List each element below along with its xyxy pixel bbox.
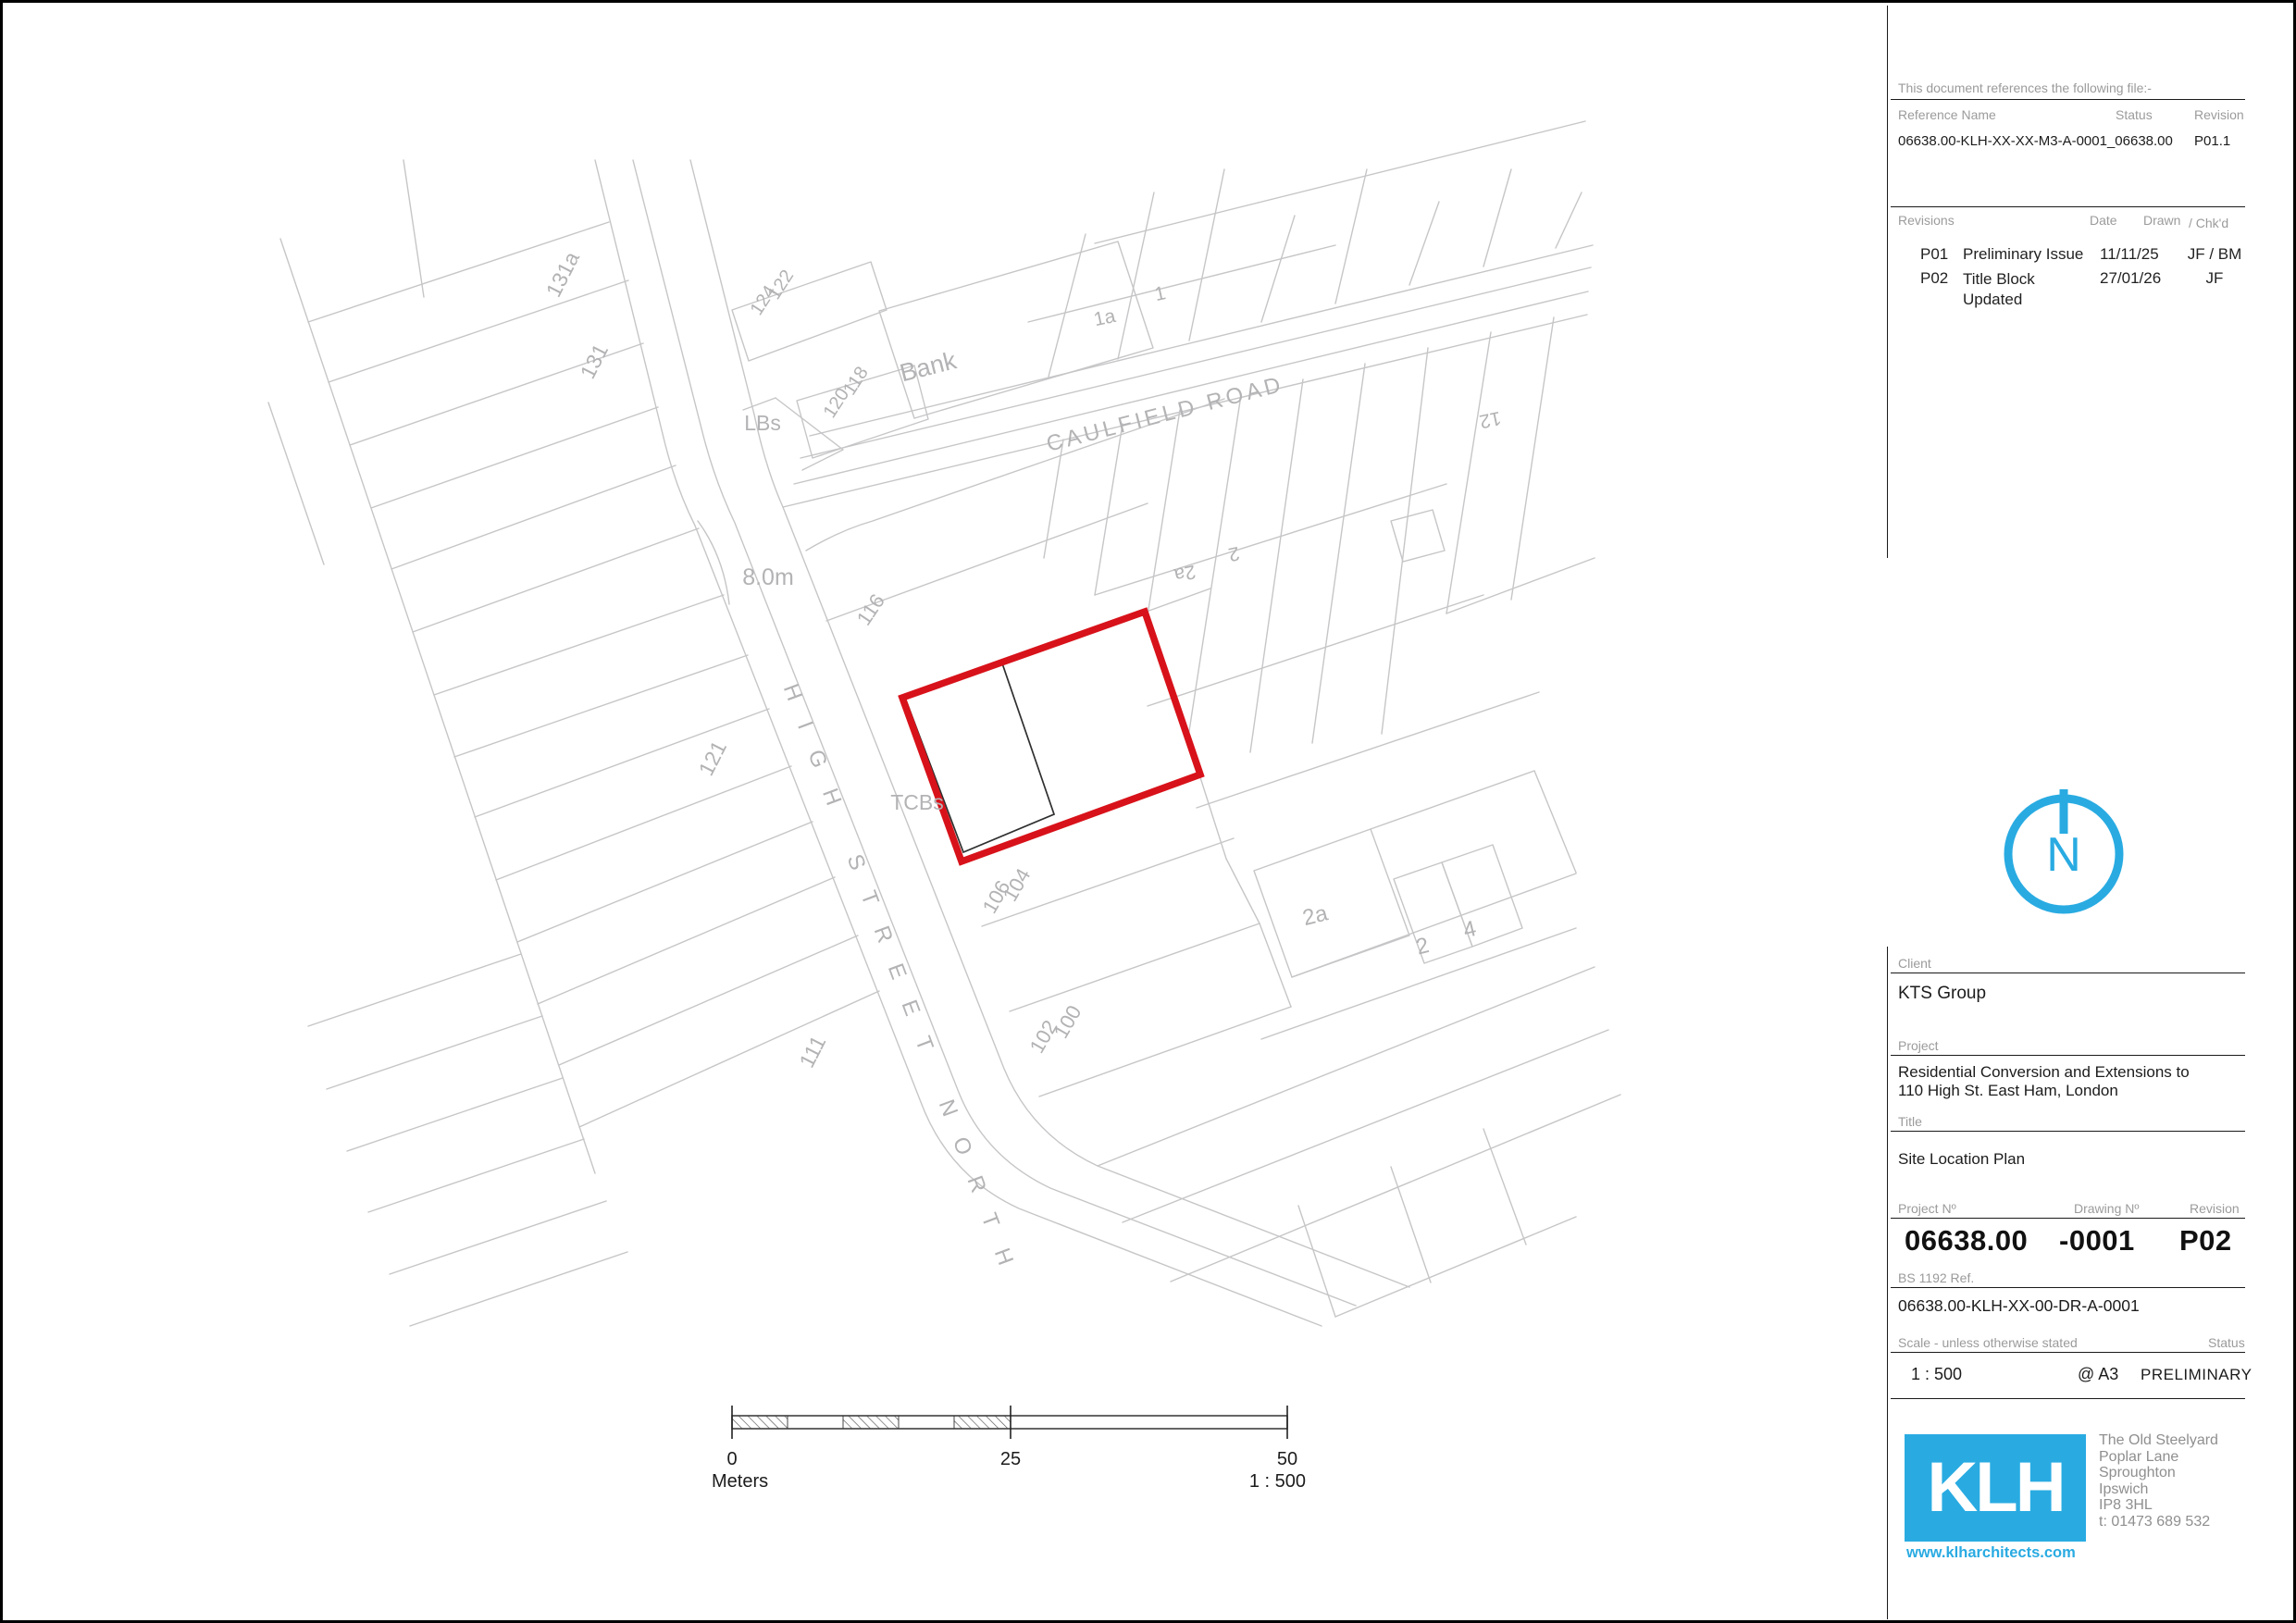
- plot-label: 131: [576, 340, 614, 382]
- divider: [1891, 206, 2245, 207]
- divider: [1891, 1131, 2245, 1132]
- plot-label: 1: [1153, 282, 1168, 305]
- north-arrow: N: [2008, 789, 2119, 910]
- plot-label: 111: [794, 1032, 830, 1072]
- revision-id: P02: [1920, 269, 1948, 288]
- road-width-label: 8.0m: [742, 564, 794, 590]
- bs-ref-label: BS 1192 Ref.: [1898, 1270, 1974, 1285]
- drawing-sheet: CAULFIELD ROAD HIGH STREET NORTH 131a 13…: [0, 0, 2296, 1623]
- divider: [1891, 1287, 2245, 1288]
- title-block-left-border-upper: [1887, 6, 1888, 558]
- klh-logo: KLH: [1905, 1434, 2086, 1542]
- plot-label: 2a: [1300, 900, 1331, 931]
- revision-description: Title Block Updated: [1963, 269, 2074, 310]
- revision-id: P01: [1920, 245, 1948, 264]
- scale-bar: 0 25 50 Meters 1 : 500: [712, 1406, 1306, 1492]
- scale-bar-zero: 0: [726, 1449, 737, 1469]
- status-value: PRELIMINARY: [2141, 1366, 2252, 1384]
- plot-label: 131a: [541, 247, 584, 301]
- divider: [1891, 99, 2245, 100]
- address-line: The Old Steelyard: [2099, 1432, 2218, 1449]
- revisions-header: Revisions: [1898, 213, 1955, 228]
- project-no-label: Project Nº: [1898, 1201, 1956, 1216]
- scale-label: Scale - unless otherwise stated: [1898, 1335, 2078, 1350]
- revision-value: P02: [2179, 1224, 2232, 1258]
- revision-by: JF / BM: [2183, 245, 2246, 264]
- scale-bar-unit: Meters: [712, 1471, 768, 1492]
- plot-label: 12: [1478, 407, 1504, 432]
- address-line: Poplar Lane: [2099, 1449, 2218, 1466]
- plot-label: 1a: [1092, 305, 1118, 330]
- plot-label: 2a: [1172, 561, 1198, 586]
- sheet-size: @ A3: [2078, 1365, 2118, 1384]
- divider: [1891, 1055, 2245, 1056]
- plot-label: 2: [1413, 933, 1431, 960]
- reference-header-name: Reference Name: [1898, 107, 1996, 122]
- plot-label: 2: [1226, 542, 1241, 565]
- website-link[interactable]: www.klharchitects.com: [1906, 1544, 2076, 1562]
- divider: [1891, 1398, 2245, 1399]
- scale-bar-mid: 25: [1000, 1449, 1021, 1469]
- reference-header-revision: Revision: [2194, 107, 2244, 122]
- scale-bar-ratio: 1 : 500: [1249, 1471, 1306, 1492]
- plot-label: 121: [694, 737, 732, 779]
- practice-address: The Old Steelyard Poplar Lane Sproughton…: [2099, 1432, 2218, 1530]
- revisions-header-chkd: / Chk'd: [2189, 216, 2228, 230]
- divider: [1891, 1352, 2245, 1353]
- revisions-header-date: Date: [2090, 213, 2117, 228]
- reference-file-revision: P01.1: [2194, 133, 2230, 149]
- title-block-left-border-lower: [1887, 947, 1888, 1619]
- map-linework: [268, 121, 1620, 1326]
- reference-file-name: 06638.00-KLH-XX-XX-M3-A-0001_06638.00: [1898, 133, 2173, 149]
- scale-bar-end: 50: [1277, 1449, 1297, 1469]
- divider: [1891, 1218, 2245, 1219]
- revision-date: 11/11/25: [2100, 245, 2159, 264]
- project-name-line1: Residential Conversion and Extensions to: [1898, 1063, 2190, 1082]
- site-boundary: [902, 612, 1200, 861]
- client-name: KTS Group: [1898, 984, 1986, 1004]
- tcbs-label: TCBs: [890, 790, 944, 814]
- klh-logo-text: KLH: [1927, 1453, 2063, 1523]
- bs-ref-value: 06638.00-KLH-XX-00-DR-A-0001: [1898, 1296, 2140, 1316]
- bank-label: Bank: [897, 346, 959, 387]
- client-label: Client: [1898, 956, 1931, 971]
- reference-header-status: Status: [2116, 107, 2153, 122]
- divider: [1891, 973, 2245, 973]
- status-label: Status: [2208, 1335, 2245, 1350]
- drawing-no-label: Drawing Nº: [2074, 1201, 2139, 1216]
- address-line: Sproughton: [2099, 1465, 2218, 1481]
- revision-by: JF: [2183, 269, 2246, 288]
- road-label-high-street: HIGH STREET NORTH: [778, 680, 1026, 1291]
- revisions-header-drawn: Drawn: [2143, 213, 2180, 228]
- title-label: Title: [1898, 1114, 1922, 1129]
- drawing-title: Site Location Plan: [1898, 1150, 2025, 1169]
- address-line: t: 01473 689 532: [2099, 1514, 2218, 1530]
- address-line: IP8 3HL: [2099, 1497, 2218, 1514]
- reference-intro: This document references the following f…: [1898, 81, 2152, 95]
- revision-description: Preliminary Issue: [1963, 245, 2097, 264]
- project-name-line2: 110 High St. East Ham, London: [1898, 1082, 2118, 1100]
- north-arrow-letter: N: [2046, 828, 2081, 882]
- address-line: Ipswich: [2099, 1481, 2218, 1498]
- plot-label: 116: [852, 589, 889, 629]
- plot-label: 4: [1460, 916, 1478, 943]
- revision-date: 27/01/26: [2100, 269, 2161, 288]
- scale-value: 1 : 500: [1911, 1365, 1962, 1384]
- revision-label: Revision: [2190, 1201, 2240, 1216]
- lbs-label: LBs: [744, 411, 781, 435]
- project-no: 06638.00: [1905, 1224, 2028, 1258]
- drawing-no: -0001: [2059, 1224, 2135, 1258]
- project-label: Project: [1898, 1038, 1939, 1053]
